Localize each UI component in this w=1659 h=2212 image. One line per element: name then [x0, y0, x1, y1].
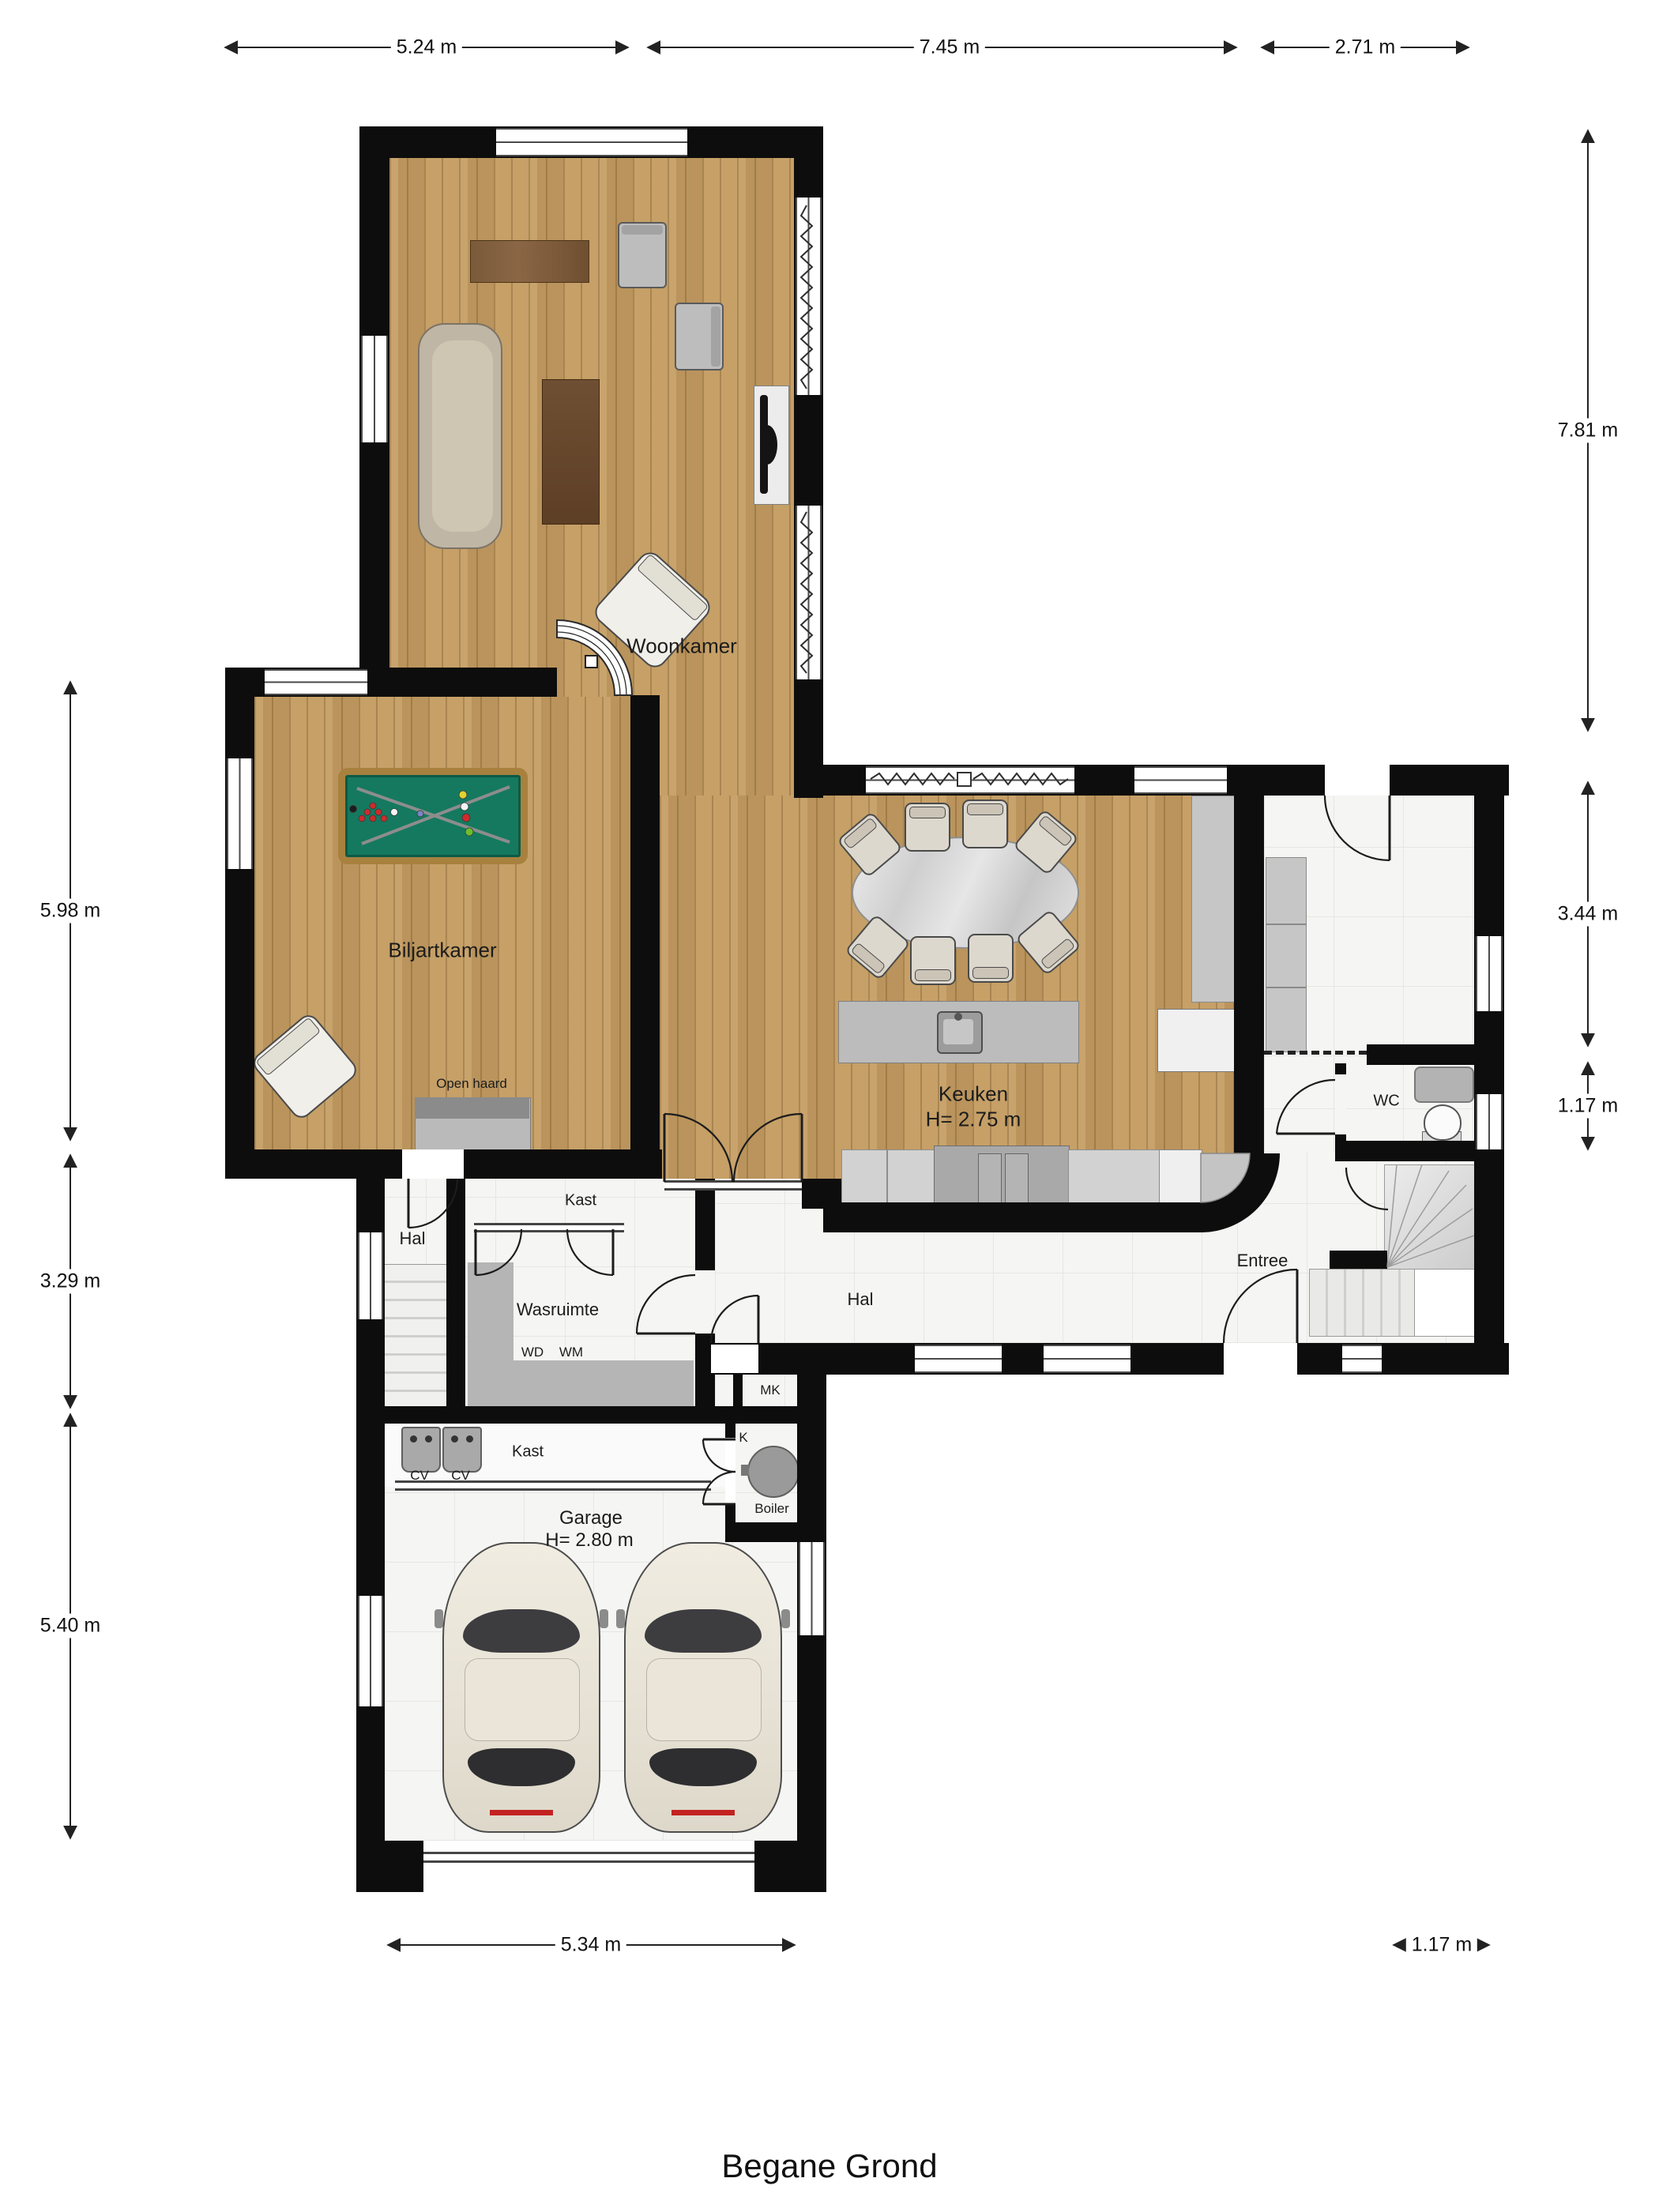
- room-label-hal-links: Hal: [399, 1228, 425, 1249]
- room-label-hal: Hal: [847, 1289, 873, 1310]
- wc-door-opening: [1335, 1074, 1346, 1134]
- window: [265, 669, 367, 695]
- wall: [446, 1179, 465, 1406]
- dim-bottom-2: 1.17 m: [1406, 1933, 1477, 1958]
- radiator-zigzags: [801, 205, 1068, 784]
- room-label-woonkamer: Woonkamer: [626, 634, 737, 659]
- sideboard: [470, 240, 589, 283]
- window: [358, 1232, 383, 1319]
- wall: [356, 1406, 826, 1424]
- sofa: [418, 323, 502, 549]
- room-label-biljartkamer: Biljartkamer: [388, 939, 496, 963]
- window: [1342, 1345, 1382, 1373]
- pantry-cabinet: [1266, 857, 1307, 1052]
- garage-door: [423, 1852, 754, 1863]
- stove-module-2: [1005, 1153, 1029, 1204]
- sliding-door-kast: [474, 1223, 624, 1232]
- wall: [733, 1375, 743, 1424]
- cv-unit-1: [401, 1427, 441, 1473]
- room-label-keuken: Keuken: [939, 1082, 1008, 1107]
- room-label-entree: Entree: [1237, 1251, 1288, 1271]
- kitchen-counter-left: [841, 1149, 935, 1205]
- window: [1134, 766, 1227, 794]
- label-k: K: [739, 1430, 747, 1446]
- window-radiator: [796, 197, 822, 395]
- kitchen-appliance: [1157, 1009, 1236, 1072]
- door-opening: [695, 1270, 715, 1334]
- label-wm: WM: [559, 1345, 583, 1360]
- armchair-gray-1: [618, 222, 667, 288]
- mk-door-opening: [711, 1345, 758, 1373]
- window: [358, 1596, 383, 1706]
- wall: [1335, 1141, 1477, 1161]
- sink-basin: [943, 1019, 973, 1044]
- label-mk: MK: [760, 1382, 781, 1398]
- kitchen-counter-right: [1068, 1149, 1161, 1205]
- fridge: [1159, 1149, 1202, 1205]
- wall: [1234, 796, 1264, 1153]
- stairs-hal-links: [379, 1264, 452, 1408]
- wall: [1367, 1044, 1474, 1065]
- wall: [225, 668, 254, 1179]
- room-label-keuken-height: H= 2.75 m: [926, 1108, 1021, 1132]
- dim-left-1: 5.98 m: [35, 899, 106, 924]
- dim-left-3: 5.40 m: [35, 1614, 106, 1638]
- car-left: [442, 1542, 600, 1833]
- dim-top-1: 5.24 m: [391, 36, 462, 60]
- door-opening: [1325, 765, 1390, 796]
- window: [1044, 1345, 1130, 1373]
- front-door-opening: [1224, 1343, 1297, 1375]
- dim-bottom-1: 5.34 m: [555, 1933, 626, 1958]
- door-opening: [402, 1149, 464, 1179]
- dining-chair: [905, 803, 950, 852]
- sliding-door-garage-closet: [395, 1480, 711, 1491]
- washbasin: [1414, 1066, 1474, 1103]
- label-cv-right: CV: [451, 1468, 470, 1484]
- boiler: [747, 1446, 799, 1498]
- dim-top-2: 7.45 m: [914, 36, 985, 60]
- dashed-opening: [1264, 1051, 1367, 1055]
- window: [496, 128, 687, 156]
- window: [361, 336, 388, 442]
- dining-chair: [962, 799, 1008, 848]
- boiler-nub: [741, 1465, 749, 1476]
- laundry-counter-h: [468, 1360, 694, 1406]
- coffee-table: [542, 379, 600, 525]
- armchair-gray-2: [675, 303, 724, 371]
- cv-unit-2: [442, 1427, 482, 1473]
- room-label-kast-top: Kast: [565, 1192, 596, 1210]
- wall: [1474, 765, 1504, 1375]
- boiler-door-opening: [725, 1438, 735, 1505]
- door-sill-french: [664, 1180, 802, 1191]
- wall: [802, 1179, 841, 1209]
- room-label-wc: WC: [1373, 1093, 1399, 1111]
- dining-chair: [910, 936, 956, 985]
- dim-left-2: 3.29 m: [35, 1270, 106, 1294]
- label-open-haard: Open haard: [436, 1076, 507, 1092]
- billiard-table: [338, 768, 528, 864]
- fireplace-top: [415, 1097, 529, 1119]
- stairs-winder: [1384, 1164, 1476, 1270]
- label-boiler: Boiler: [754, 1501, 788, 1517]
- wall: [356, 1841, 423, 1892]
- room-label-garage-height: H= 2.80 m: [545, 1529, 633, 1552]
- kitchen-tall-cabinets: [1191, 796, 1236, 1003]
- label-cv-left: CV: [410, 1468, 429, 1484]
- car-right: [624, 1542, 782, 1833]
- wall: [823, 1202, 1201, 1232]
- dim-right-2: 3.44 m: [1552, 902, 1623, 927]
- window: [227, 758, 253, 869]
- stove-module-1: [978, 1153, 1002, 1204]
- label-wd: WD: [521, 1345, 544, 1360]
- room-label-garage: Garage: [559, 1507, 623, 1529]
- room-label-kast-garage: Kast: [512, 1443, 544, 1461]
- dim-top-3: 2.71 m: [1330, 36, 1401, 60]
- dim-right-1: 7.81 m: [1552, 419, 1623, 443]
- room-label-wasruimte: Wasruimte: [517, 1300, 599, 1320]
- stairs-landing: [1414, 1269, 1476, 1337]
- floorplan-canvas: Woonkamer Biljartkamer Keuken H= 2.75 m …: [0, 0, 1659, 2212]
- window: [915, 1345, 1002, 1373]
- wall: [754, 1841, 826, 1892]
- dining-chair: [968, 934, 1014, 983]
- faucet: [954, 1013, 962, 1021]
- stairs-flight: [1309, 1269, 1416, 1337]
- wall: [1330, 1251, 1387, 1269]
- window: [799, 1542, 825, 1635]
- window: [1476, 1094, 1503, 1149]
- window-radiator: [866, 766, 1074, 794]
- page-title: Begane Grond: [721, 2147, 937, 2185]
- window: [1476, 936, 1503, 1011]
- toilet-bowl: [1424, 1104, 1461, 1141]
- dim-right-3: 1.17 m: [1552, 1094, 1623, 1119]
- wall: [630, 695, 660, 1149]
- window-radiator: [796, 506, 822, 679]
